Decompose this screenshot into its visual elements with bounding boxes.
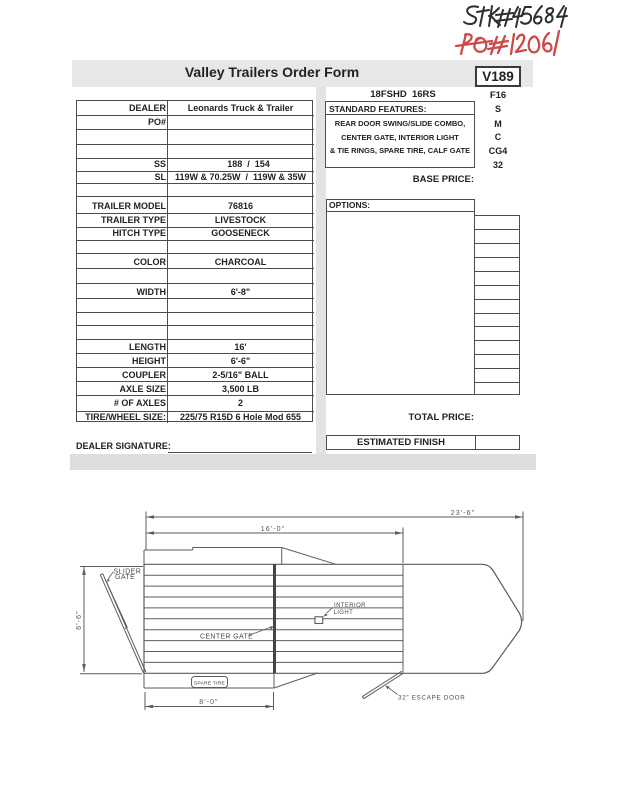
svg-text:CENTER GATE: CENTER GATE (200, 633, 253, 640)
svg-text:16'-0": 16'-0" (261, 526, 285, 533)
svg-text:GATE: GATE (115, 574, 135, 581)
svg-text:8'-0": 8'-0" (199, 699, 218, 706)
svg-text:SPARE TIRE: SPARE TIRE (194, 681, 225, 687)
svg-text:LIGHT: LIGHT (334, 610, 354, 616)
svg-text:INTERIOR: INTERIOR (334, 603, 366, 609)
svg-text:6'-6": 6'-6" (76, 610, 83, 629)
svg-text:23'-6": 23'-6" (451, 510, 475, 517)
svg-text:32" ESCAPE DOOR: 32" ESCAPE DOOR (398, 695, 465, 702)
